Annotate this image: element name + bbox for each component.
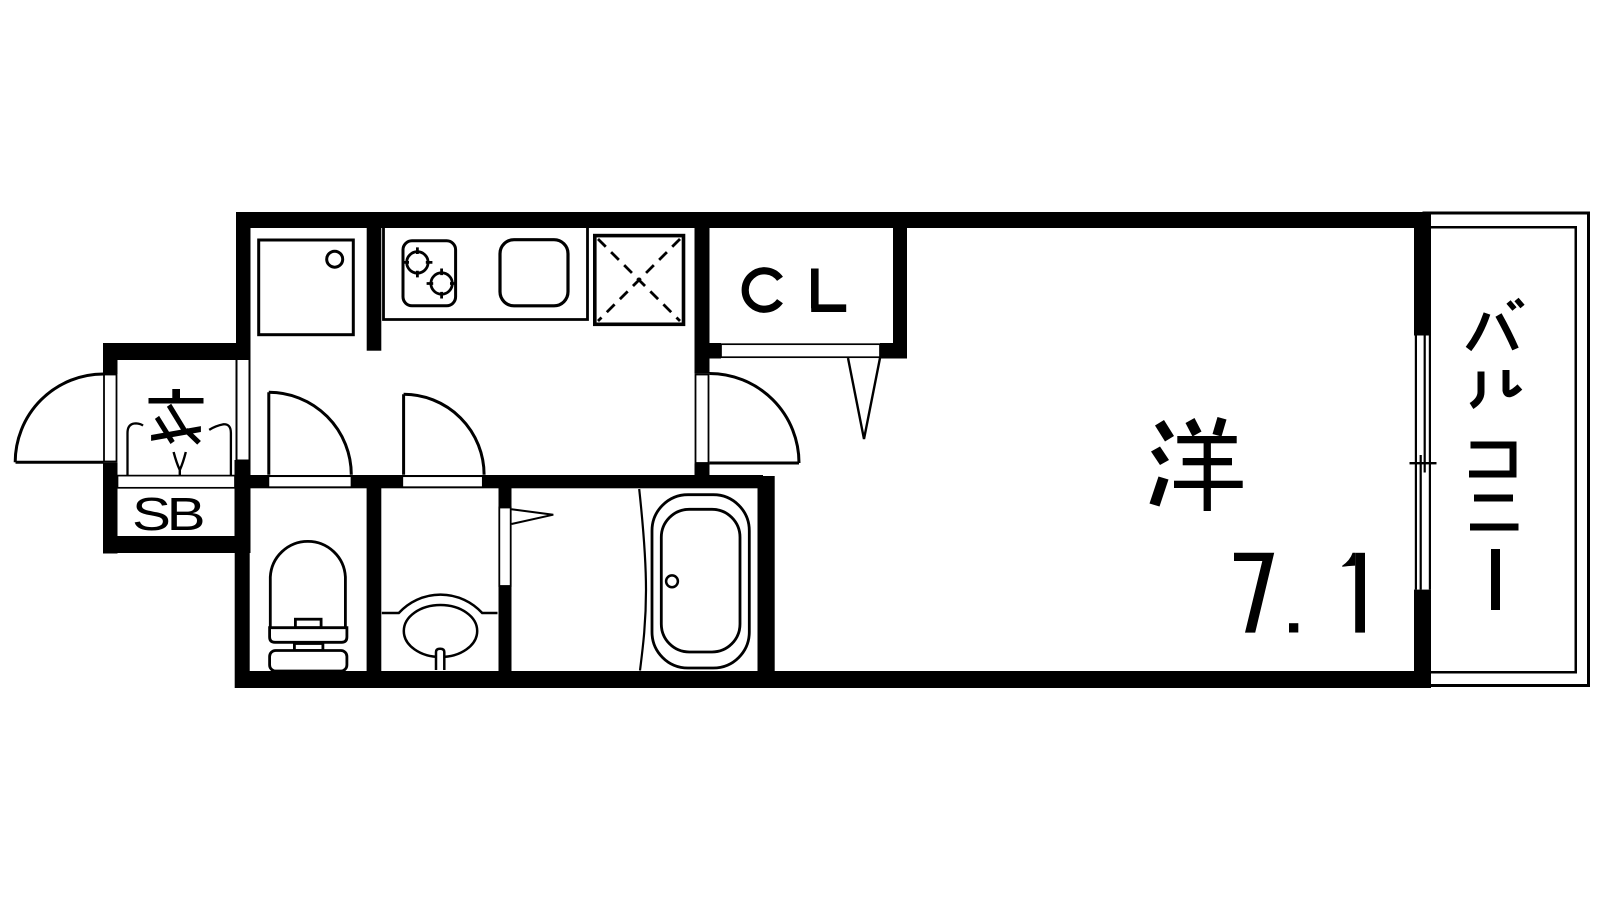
svg-text:SB: SB [132,489,203,541]
